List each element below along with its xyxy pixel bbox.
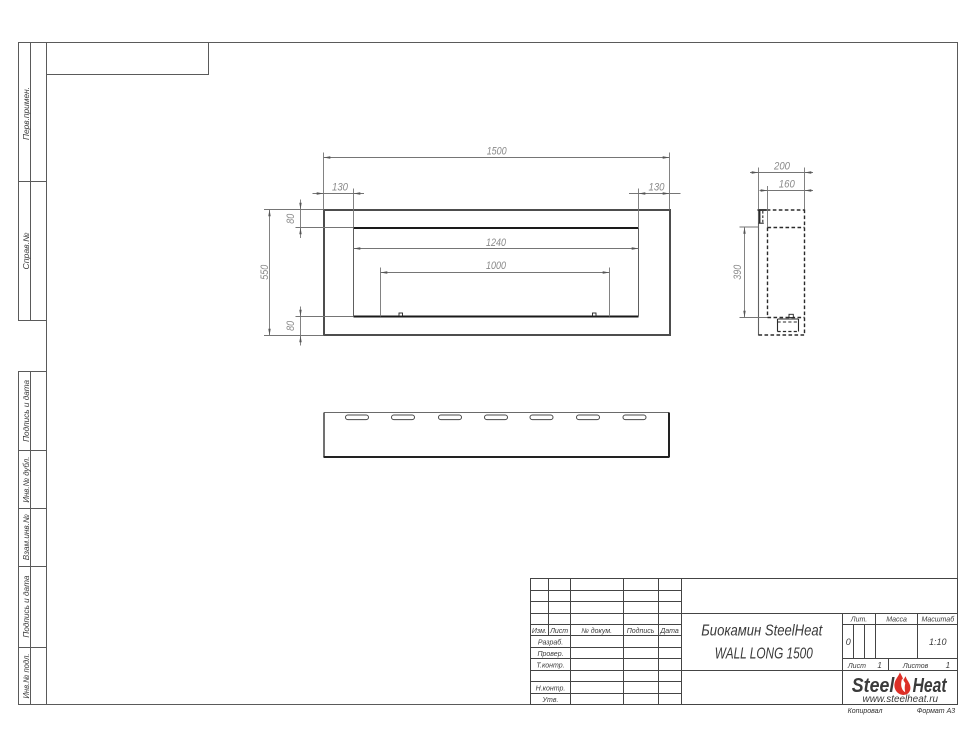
- svg-text:Лист: Лист: [847, 663, 866, 670]
- svg-text:Масса: Масса: [886, 617, 907, 624]
- svg-text:www.steelheat.ru: www.steelheat.ru: [863, 693, 939, 705]
- svg-text:Подпись: Подпись: [627, 627, 655, 635]
- svg-text:1: 1: [946, 661, 950, 670]
- svg-text:0: 0: [846, 637, 851, 647]
- svg-text:Перв.примен.: Перв.примен.: [21, 87, 31, 140]
- svg-text:80: 80: [285, 320, 297, 331]
- svg-text:Инв.№ подл.: Инв.№ подл.: [21, 654, 31, 699]
- svg-text:Инв.№ дубл.: Инв.№ дубл.: [21, 457, 31, 503]
- svg-text:390: 390: [732, 264, 744, 280]
- svg-text:Т.контр.: Т.контр.: [536, 663, 564, 670]
- svg-text:Копировал: Копировал: [848, 708, 883, 715]
- svg-text:160: 160: [779, 179, 796, 191]
- svg-text:WALL LONG 1500: WALL LONG 1500: [715, 646, 813, 663]
- svg-text:№ докум.: № докум.: [581, 627, 612, 635]
- svg-text:Биокамин SteelHeat: Биокамин SteelHeat: [701, 623, 822, 640]
- svg-text:1500: 1500: [487, 145, 508, 157]
- svg-text:Формат А3: Формат А3: [917, 708, 955, 715]
- svg-text:Утв.: Утв.: [542, 697, 559, 704]
- svg-text:80: 80: [285, 213, 297, 224]
- svg-text:Листов: Листов: [902, 663, 929, 670]
- svg-text:1000: 1000: [486, 260, 507, 272]
- svg-text:1:10: 1:10: [929, 637, 947, 647]
- svg-text:Изм.: Изм.: [532, 628, 547, 635]
- svg-text:130: 130: [332, 182, 349, 194]
- svg-text:Справ.№: Справ.№: [21, 232, 31, 269]
- svg-text:1: 1: [877, 661, 881, 670]
- svg-text:Подпись и дата: Подпись и дата: [21, 575, 31, 637]
- svg-text:Дата: Дата: [659, 628, 679, 635]
- svg-text:Подпись и дата: Подпись и дата: [21, 380, 31, 442]
- svg-text:Масштаб: Масштаб: [921, 616, 955, 624]
- svg-text:Лист: Лист: [549, 628, 568, 635]
- svg-text:Разраб.: Разраб.: [538, 639, 563, 647]
- svg-text:Провер.: Провер.: [537, 651, 563, 658]
- svg-text:Взам.инв.№: Взам.инв.№: [21, 514, 31, 560]
- svg-text:Лит.: Лит.: [850, 617, 867, 624]
- svg-text:550: 550: [259, 264, 271, 280]
- svg-text:Н.контр.: Н.контр.: [536, 685, 566, 692]
- svg-text:200: 200: [773, 160, 791, 172]
- svg-text:1240: 1240: [486, 237, 507, 249]
- svg-text:130: 130: [649, 182, 666, 194]
